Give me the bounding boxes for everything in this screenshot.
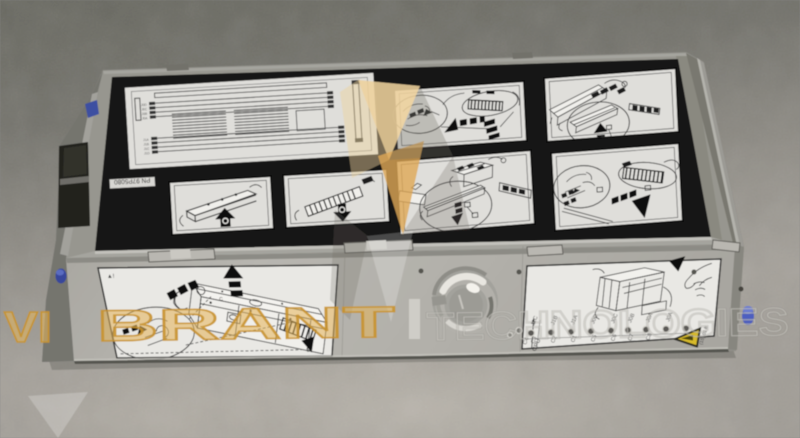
svg-text:BRANT: BRANT xyxy=(96,298,395,351)
svg-text:▲!: ▲! xyxy=(107,274,116,280)
svg-text:VI: VI xyxy=(4,303,52,352)
svg-text:J1D: J1D xyxy=(144,151,151,155)
svg-text:TECHNOLOGIES: TECHNOLOGIES xyxy=(427,301,790,349)
